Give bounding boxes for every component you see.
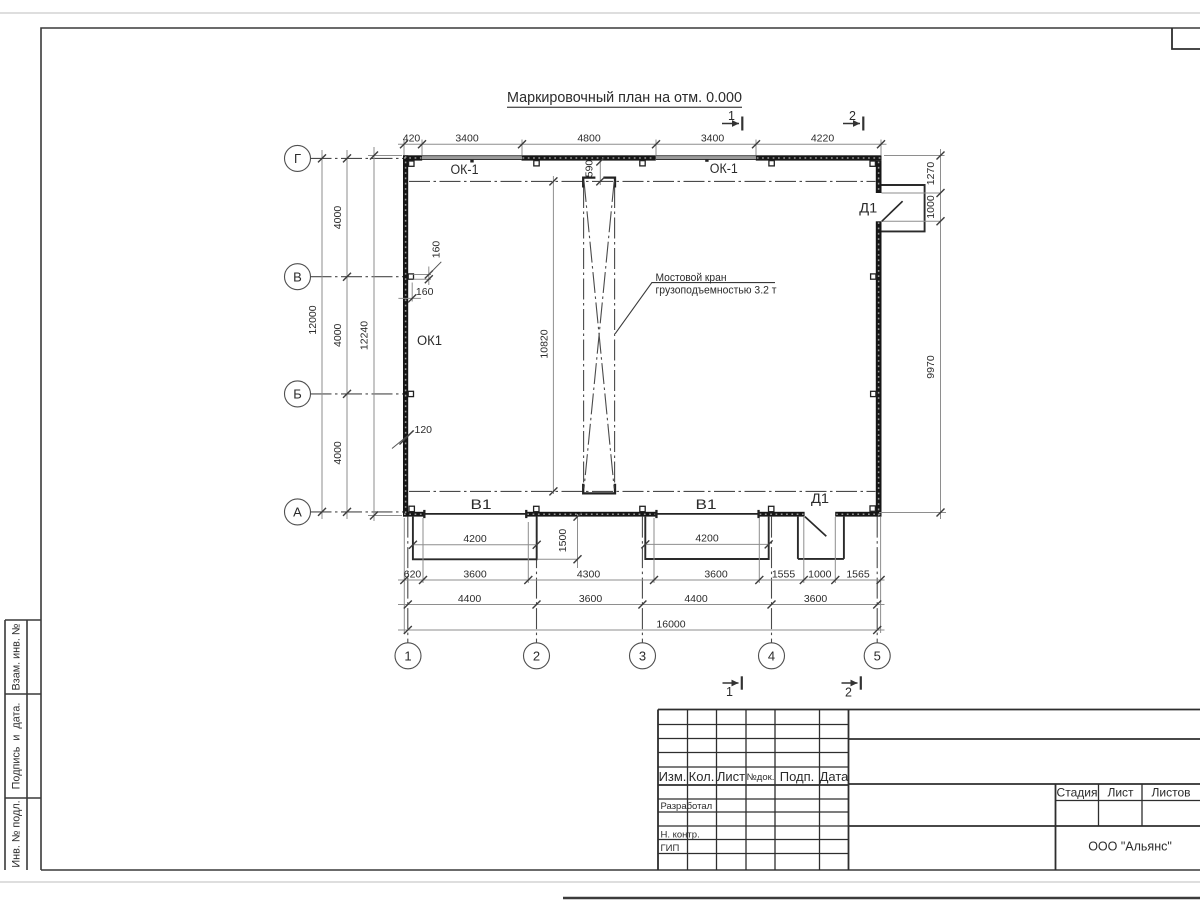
svg-text:4200: 4200 (463, 533, 487, 545)
svg-text:Инв. № подл.: Инв. № подл. (10, 800, 22, 867)
svg-text:1: 1 (726, 685, 733, 699)
svg-text:1270: 1270 (925, 162, 937, 186)
svg-text:2: 2 (533, 648, 540, 663)
svg-text:1565: 1565 (846, 569, 870, 581)
svg-text:Листов: Листов (1152, 786, 1191, 800)
svg-text:Кол.: Кол. (689, 769, 715, 784)
svg-text:160: 160 (416, 286, 434, 298)
svg-text:№док.: №док. (747, 772, 775, 783)
svg-text:Н. контр.: Н. контр. (661, 830, 700, 841)
svg-text:4000: 4000 (332, 323, 344, 347)
svg-text:620: 620 (404, 569, 422, 581)
svg-text:3600: 3600 (463, 569, 487, 581)
svg-text:1555: 1555 (772, 569, 796, 581)
svg-text:3400: 3400 (701, 133, 725, 145)
svg-text:Взам. инв. №: Взам. инв. № (10, 623, 22, 690)
svg-text:4220: 4220 (811, 133, 835, 145)
svg-text:Г: Г (294, 151, 301, 166)
svg-text:590: 590 (584, 160, 596, 178)
svg-text:4400: 4400 (458, 593, 482, 605)
svg-text:Подпись и дата.: Подпись и дата. (10, 703, 22, 790)
svg-text:1: 1 (404, 648, 411, 663)
svg-text:В: В (293, 269, 302, 284)
svg-text:12000: 12000 (307, 305, 319, 334)
svg-text:Маркировочный план на отм. 0.0: Маркировочный план на отм. 0.000 (507, 90, 742, 106)
svg-text:1000: 1000 (808, 569, 832, 581)
svg-text:2: 2 (845, 686, 852, 700)
svg-text:1: 1 (728, 109, 735, 123)
svg-text:2: 2 (849, 109, 856, 123)
svg-text:9970: 9970 (925, 355, 937, 379)
svg-text:грузоподъемностью 3.2 т: грузоподъемностью 3.2 т (656, 285, 777, 297)
svg-text:4000: 4000 (332, 206, 344, 230)
svg-text:А: А (293, 505, 302, 520)
svg-text:ОК1: ОК1 (417, 333, 442, 348)
svg-text:420: 420 (403, 133, 421, 145)
svg-text:4800: 4800 (577, 133, 601, 145)
svg-text:4300: 4300 (577, 569, 601, 581)
svg-text:Разработал: Разработал (661, 801, 713, 812)
svg-text:3600: 3600 (804, 593, 828, 605)
svg-text:Дата: Дата (820, 769, 850, 784)
svg-text:В1: В1 (471, 497, 492, 512)
svg-text:1500: 1500 (557, 529, 569, 553)
svg-text:3: 3 (639, 648, 646, 663)
svg-text:4200: 4200 (695, 532, 719, 544)
svg-text:Лист: Лист (1107, 786, 1134, 800)
svg-text:3600: 3600 (704, 569, 728, 581)
svg-text:3600: 3600 (579, 593, 603, 605)
svg-text:12240: 12240 (359, 321, 371, 350)
svg-text:Лист: Лист (717, 769, 745, 784)
svg-text:ОК-1: ОК-1 (451, 162, 479, 177)
svg-text:Подп.: Подп. (780, 769, 815, 784)
svg-text:ГИП: ГИП (661, 843, 680, 854)
svg-text:ООО "Альянс": ООО "Альянс" (1088, 840, 1172, 854)
svg-text:160: 160 (431, 241, 443, 259)
svg-text:ОК-1: ОК-1 (710, 161, 738, 176)
svg-text:4: 4 (768, 648, 775, 663)
svg-text:4400: 4400 (684, 593, 708, 605)
svg-text:Д1: Д1 (859, 201, 877, 216)
svg-text:В1: В1 (696, 497, 717, 512)
svg-text:16000: 16000 (656, 618, 685, 630)
svg-text:Мостовой кран: Мостовой кран (656, 272, 727, 284)
svg-text:Изм.: Изм. (659, 769, 687, 784)
svg-text:5: 5 (874, 648, 881, 663)
svg-text:Д1: Д1 (811, 491, 829, 506)
svg-text:4000: 4000 (332, 441, 344, 465)
svg-text:120: 120 (415, 424, 433, 436)
svg-text:1000: 1000 (925, 195, 937, 219)
svg-text:Стадия: Стадия (1057, 786, 1098, 800)
svg-text:Б: Б (293, 387, 302, 402)
svg-text:10820: 10820 (539, 329, 551, 358)
svg-text:3400: 3400 (455, 133, 479, 145)
